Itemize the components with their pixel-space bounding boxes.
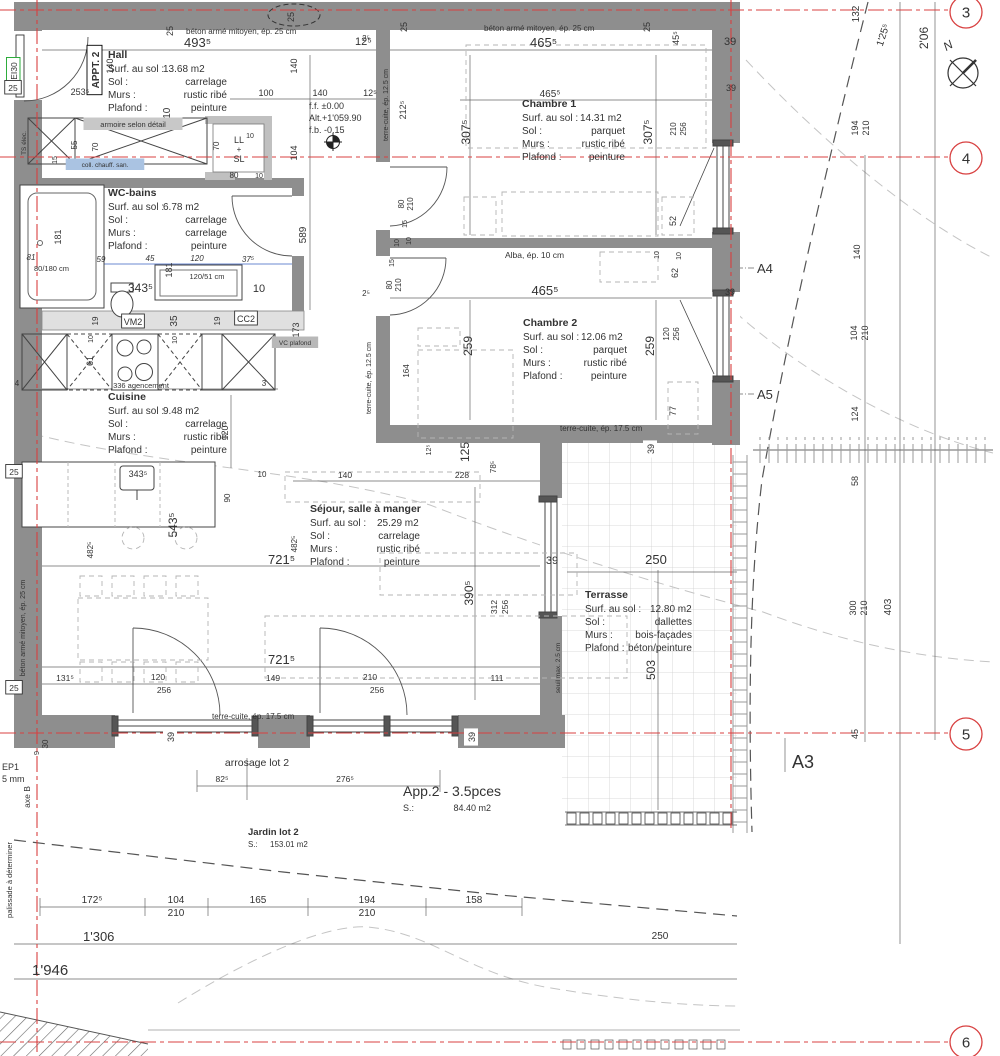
svg-text:250: 250 xyxy=(652,931,669,942)
dim-label: 140 xyxy=(312,88,327,98)
svg-text:Alba, ép. 10 cm: Alba, ép. 10 cm xyxy=(505,250,564,260)
svg-text:EI30: EI30 xyxy=(9,62,19,80)
dim-label: 12⁵ xyxy=(426,445,433,456)
svg-text:256: 256 xyxy=(679,122,688,136)
svg-text:39: 39 xyxy=(546,555,558,567)
svg-text:82⁵: 82⁵ xyxy=(216,774,229,784)
svg-text:212⁵: 212⁵ xyxy=(398,100,408,119)
fence-hatch xyxy=(733,437,993,833)
svg-text:Terrasse: Terrasse xyxy=(585,589,628,601)
dim-label: LL xyxy=(234,135,244,145)
dresser-chambre2 xyxy=(600,252,658,282)
dim-label: 10 xyxy=(654,251,661,259)
svg-text:2'06: 2'06 xyxy=(917,27,931,50)
svg-text:59: 59 xyxy=(97,255,106,264)
dim-label: 589 xyxy=(298,226,309,243)
dim-label: 228 xyxy=(455,470,469,480)
dim-label: 84.40 m2 xyxy=(453,803,491,813)
svg-text:10: 10 xyxy=(406,237,413,245)
svg-text:80: 80 xyxy=(397,199,406,208)
dim-label: 307⁵ xyxy=(459,119,473,144)
floor-plan-drawing: 2525béton armé mitoyen, ép. 25 cm493⁵12⁵… xyxy=(0,0,1000,1056)
svg-text:256: 256 xyxy=(672,327,681,341)
svg-text:terre-cuite, ép. 12.5 cm: terre-cuite, ép. 12.5 cm xyxy=(366,342,373,414)
svg-text:Plafond :: Plafond : xyxy=(108,445,147,456)
dim-label: 30 xyxy=(41,739,50,748)
svg-text:App.2 - 3.5pces: App.2 - 3.5pces xyxy=(403,783,501,799)
svg-text:parquet: parquet xyxy=(593,345,627,356)
svg-text:15: 15 xyxy=(52,156,59,164)
svg-text:543⁵: 543⁵ xyxy=(166,512,180,537)
dim-label: 149 xyxy=(266,673,280,683)
svg-text:39: 39 xyxy=(467,732,477,742)
svg-text:45: 45 xyxy=(146,254,155,263)
dim-label: + xyxy=(237,145,242,154)
bottom-hatch xyxy=(0,1012,740,1056)
level-alt: Alt.+1'059.90 xyxy=(309,113,362,123)
svg-text:39: 39 xyxy=(166,732,176,742)
svg-text:13.68 m2: 13.68 m2 xyxy=(163,64,205,75)
svg-text:2⁵: 2⁵ xyxy=(362,289,370,298)
svg-text:19: 19 xyxy=(213,316,222,325)
svg-text:253⁵: 253⁵ xyxy=(71,87,90,97)
dim-label: 104 xyxy=(849,325,859,340)
svg-text:55: 55 xyxy=(70,140,79,149)
chambre1-door xyxy=(390,167,447,226)
dim-label: S.: xyxy=(248,840,258,849)
svg-text:259: 259 xyxy=(461,336,475,356)
dim-label: 70 xyxy=(212,141,221,150)
grid-bubble-3: 3 xyxy=(950,0,982,28)
dim-label: 165 xyxy=(250,895,267,906)
svg-text:343⁵: 343⁵ xyxy=(129,469,148,479)
dim-label: 10 xyxy=(255,173,263,180)
dim-label: 58 xyxy=(850,476,860,486)
dim-label: 256 xyxy=(370,685,384,695)
svg-text:12⁵: 12⁵ xyxy=(426,445,433,456)
room-label-cuisine: CuisineSurf. au sol :9.48 m2Sol :carrela… xyxy=(108,391,227,456)
dim-label: 25 xyxy=(6,681,23,695)
svg-text:25: 25 xyxy=(8,83,18,93)
svg-text:Surf. au sol :: Surf. au sol : xyxy=(108,202,164,213)
dim-label: VC plafond xyxy=(272,337,318,349)
bed-chambre1 xyxy=(502,192,658,236)
svg-text:140: 140 xyxy=(312,88,327,98)
svg-text:APPT. 2: APPT. 2 xyxy=(91,51,102,88)
svg-text:LL: LL xyxy=(234,135,244,145)
dim-label: 336 agencement xyxy=(113,381,170,390)
dim-label: 45⁵ xyxy=(671,31,681,45)
dim-label: 307⁵ xyxy=(641,119,655,144)
dim-label: 90 xyxy=(223,493,232,502)
svg-text:SL: SL xyxy=(233,154,244,164)
dim-label: 181 xyxy=(164,262,174,277)
svg-text:210: 210 xyxy=(394,278,403,292)
dim-label: 120 xyxy=(151,672,165,682)
svg-text:131⁵: 131⁵ xyxy=(56,673,74,683)
svg-text:peinture: peinture xyxy=(591,371,628,382)
dim-label: 15 xyxy=(52,156,59,164)
dim-label: 25 xyxy=(6,465,23,479)
section-marker-a3: A3 xyxy=(792,752,814,772)
dim-label: terre-cuite, ép. 17.5 cm xyxy=(560,424,643,433)
svg-text:6.78 m2: 6.78 m2 xyxy=(163,202,200,213)
svg-text:25: 25 xyxy=(9,683,19,693)
svg-text:307⁵: 307⁵ xyxy=(459,119,473,144)
dim-label: 61 xyxy=(85,356,95,366)
svg-text:10: 10 xyxy=(258,470,267,479)
dim-label: 131⁵ xyxy=(56,673,74,683)
dim-label: 210 xyxy=(861,120,871,135)
svg-text:Murs :: Murs : xyxy=(585,630,613,641)
svg-text:Surf. au sol :: Surf. au sol : xyxy=(108,406,164,417)
svg-text:Murs :: Murs : xyxy=(522,139,550,150)
dim-label: 210 xyxy=(859,600,869,615)
svg-text:5 mm: 5 mm xyxy=(2,774,25,784)
svg-text:210: 210 xyxy=(861,120,871,135)
svg-text:181: 181 xyxy=(164,262,174,277)
dim-label: 276⁵ xyxy=(336,774,354,784)
dim-label: armoire selon détail xyxy=(84,118,183,131)
dim-label: 80 xyxy=(397,199,406,208)
svg-text:78⁵: 78⁵ xyxy=(489,461,498,473)
svg-text:256: 256 xyxy=(500,600,510,614)
svg-text:10: 10 xyxy=(88,335,95,343)
svg-text:61: 61 xyxy=(85,356,95,366)
svg-text:165: 165 xyxy=(250,895,267,906)
svg-text:210: 210 xyxy=(168,908,185,919)
dim-label: 256 xyxy=(500,600,510,614)
dim-label: 39 xyxy=(163,728,177,745)
svg-text:312: 312 xyxy=(489,600,499,614)
svg-text:A5: A5 xyxy=(757,387,773,402)
svg-text:62: 62 xyxy=(670,268,680,278)
dim-label: 2⁵ xyxy=(362,34,370,43)
svg-text:seuil max. 2.5 cm: seuil max. 2.5 cm xyxy=(555,643,562,694)
svg-text:1'25⁵: 1'25⁵ xyxy=(875,23,892,48)
svg-text:149: 149 xyxy=(266,673,280,683)
svg-text:45⁵: 45⁵ xyxy=(671,31,681,45)
dim-label: 124 xyxy=(850,406,860,421)
chair xyxy=(144,576,166,596)
room-label-chambre2: Chambre 2Surf. au sol :12.06 m2Sol :parq… xyxy=(523,317,627,382)
svg-text:45: 45 xyxy=(850,729,860,739)
dim-label: 343⁵ xyxy=(128,281,153,295)
grid-bubbles-layer: 3456 xyxy=(950,0,982,1056)
nightstand xyxy=(464,197,496,235)
svg-text:12⁵: 12⁵ xyxy=(363,88,377,98)
svg-text:503: 503 xyxy=(644,660,658,680)
bathtub xyxy=(20,185,104,308)
bed-chambre2 xyxy=(418,350,513,438)
svg-text:589: 589 xyxy=(298,226,309,243)
dim-label: terre-cuite, ép. 17.5 cm xyxy=(212,712,295,721)
dim-label: 403 xyxy=(883,598,894,615)
svg-text:3: 3 xyxy=(962,5,970,22)
property-boundary xyxy=(14,840,737,916)
dim-label: 194 xyxy=(850,120,860,135)
dim-label: 173 xyxy=(291,322,301,337)
svg-text:9: 9 xyxy=(32,751,41,755)
svg-text:peinture: peinture xyxy=(191,103,228,114)
level-marker-icon xyxy=(324,133,342,151)
dim-label: 39 xyxy=(546,555,558,567)
dim-label: 120 xyxy=(190,254,204,263)
svg-text:482⁵: 482⁵ xyxy=(290,536,299,553)
svg-text:194: 194 xyxy=(850,120,860,135)
dim-label: 81 xyxy=(27,253,36,262)
svg-text:4: 4 xyxy=(15,379,20,388)
svg-text:12.06 m2: 12.06 m2 xyxy=(581,332,623,343)
svg-text:19: 19 xyxy=(91,316,100,325)
svg-text:90: 90 xyxy=(223,493,232,502)
dim-label: 52 xyxy=(668,216,678,226)
svg-text:120: 120 xyxy=(151,672,165,682)
dim-label: 194 xyxy=(359,895,376,906)
dim-label: 140 xyxy=(852,244,862,259)
svg-text:terre-cuite, ép. 12.5 cm: terre-cuite, ép. 12.5 cm xyxy=(383,69,390,141)
svg-text:15: 15 xyxy=(389,259,396,267)
svg-text:140: 140 xyxy=(338,470,352,480)
dim-label: 35 xyxy=(169,315,180,327)
level-ff: f.f. ±0.00 xyxy=(309,101,344,111)
dim-label: VM2 xyxy=(122,314,145,328)
dim-label: seuil max. 2.5 cm xyxy=(555,643,562,694)
svg-text:Cuisine: Cuisine xyxy=(108,391,146,403)
dim-label: 19 xyxy=(213,316,222,325)
dim-label: 259 xyxy=(643,336,657,356)
chair xyxy=(112,576,134,596)
dim-label: 39 xyxy=(726,83,736,93)
dim-label: 12⁵ xyxy=(363,88,377,98)
svg-text:181: 181 xyxy=(53,229,63,244)
dim-label: 1'25⁵ xyxy=(875,23,892,48)
svg-text:bois-façades: bois-façades xyxy=(635,630,692,641)
svg-text:S.:: S.: xyxy=(248,840,258,849)
svg-text:9.48 m2: 9.48 m2 xyxy=(163,406,200,417)
svg-text:210: 210 xyxy=(406,197,415,211)
svg-text:259: 259 xyxy=(643,336,657,356)
svg-text:210: 210 xyxy=(859,600,869,615)
svg-text:peinture: peinture xyxy=(191,241,228,252)
sejour-door-1 xyxy=(133,628,220,715)
svg-text:100: 100 xyxy=(258,88,273,98)
dim-label: TS élec. xyxy=(21,131,28,155)
dim-label: 312 xyxy=(489,600,499,614)
svg-text:terre-cuite, ép. 17.5 cm: terre-cuite, ép. 17.5 cm xyxy=(212,712,295,721)
svg-text:343⁵: 343⁵ xyxy=(128,281,153,295)
svg-text:carrelage: carrelage xyxy=(185,228,227,239)
dim-label: 256 xyxy=(672,327,681,341)
svg-text:125: 125 xyxy=(458,442,472,462)
svg-text:14.31 m2: 14.31 m2 xyxy=(580,113,622,124)
dim-label: terre-cuite, ép. 12.5 cm xyxy=(366,342,373,414)
svg-text:Sol :: Sol : xyxy=(108,419,128,430)
dim-label: 39 xyxy=(643,440,657,457)
dim-label: 100 xyxy=(258,88,273,98)
dim-label: 158 xyxy=(466,895,483,906)
dim-label: 45 xyxy=(850,729,860,739)
apartment-area-label: App.2 - 3.5pces xyxy=(403,783,501,799)
dim-label: 120 xyxy=(662,327,671,341)
svg-text:120: 120 xyxy=(190,254,204,263)
dim-label: 210 xyxy=(359,908,376,919)
svg-text:721⁵: 721⁵ xyxy=(268,552,295,567)
svg-text:Plafond :: Plafond : xyxy=(108,241,147,252)
dim-label: 721⁵ xyxy=(268,552,295,567)
svg-text:120: 120 xyxy=(662,327,671,341)
dim-label: palissade à déterminer xyxy=(5,842,14,918)
svg-text:336 agencement: 336 agencement xyxy=(113,381,170,390)
svg-text:Jardin lot 2: Jardin lot 2 xyxy=(248,827,299,838)
svg-text:carrelage: carrelage xyxy=(185,419,227,430)
room-label-sejour: Séjour, salle à mangerSurf. au sol :25.2… xyxy=(310,503,421,568)
svg-text:VC plafond: VC plafond xyxy=(279,340,312,347)
dim-label: CC2 xyxy=(235,311,258,325)
dim-label: 2⁵ xyxy=(362,289,370,298)
svg-text:10: 10 xyxy=(676,252,683,260)
svg-text:Sol :: Sol : xyxy=(108,77,128,88)
svg-text:coll. chauff. san.: coll. chauff. san. xyxy=(82,162,129,169)
dim-label: 82⁵ xyxy=(216,774,229,784)
dim-label: 62 xyxy=(670,268,680,278)
dim-label: 10 xyxy=(253,283,265,295)
svg-text:104: 104 xyxy=(289,145,299,160)
room-label-wc-bains: WC-bainsSurf. au sol :6.78 m2Sol :carrel… xyxy=(108,187,227,252)
svg-text:Chambre 2: Chambre 2 xyxy=(523,317,577,329)
dim-label: 543⁵ xyxy=(166,512,180,537)
svg-text:124: 124 xyxy=(850,406,860,421)
chair xyxy=(176,576,198,596)
svg-text:164: 164 xyxy=(402,364,411,378)
dim-label: 25 xyxy=(399,22,409,32)
svg-text:béton/peinture: béton/peinture xyxy=(628,643,692,654)
svg-text:Plafond :: Plafond : xyxy=(585,643,624,654)
svg-text:256: 256 xyxy=(157,685,171,695)
svg-text:307⁵: 307⁵ xyxy=(641,119,655,144)
chair xyxy=(176,662,198,682)
dim-label: 210 xyxy=(669,122,678,136)
svg-text:10: 10 xyxy=(394,239,401,247)
svg-text:172⁵: 172⁵ xyxy=(82,895,103,906)
north-label: N xyxy=(941,37,956,54)
svg-text:rustic ribé: rustic ribé xyxy=(582,139,626,150)
dim-label: 212⁵ xyxy=(398,100,408,119)
dim-label: 210 xyxy=(394,278,403,292)
dim-label: SL xyxy=(233,154,244,164)
floor-plan-page: 2525béton armé mitoyen, ép. 25 cm493⁵12⁵… xyxy=(0,0,1000,1056)
dim-label: 10 xyxy=(88,335,95,343)
svg-text:81: 81 xyxy=(27,253,36,262)
dim-label: 104 xyxy=(289,145,299,160)
svg-text:Plafond :: Plafond : xyxy=(108,103,147,114)
svg-text:390⁵: 390⁵ xyxy=(462,580,476,605)
dim-label: 4 xyxy=(15,379,20,388)
dim-label: 59 xyxy=(97,255,106,264)
svg-text:80/180 cm: 80/180 cm xyxy=(34,264,69,273)
svg-text:158: 158 xyxy=(466,895,483,906)
dim-label: 210 xyxy=(168,908,185,919)
svg-text:palissade à déterminer: palissade à déterminer xyxy=(5,842,14,918)
svg-text:25: 25 xyxy=(642,22,652,32)
svg-text:58: 58 xyxy=(850,476,860,486)
dim-label: 250 xyxy=(645,552,667,567)
svg-text:S.:: S.: xyxy=(403,803,414,813)
svg-text:Plafond :: Plafond : xyxy=(310,557,349,568)
svg-text:25.29 m2: 25.29 m2 xyxy=(377,518,419,529)
dim-label: 5 mm xyxy=(2,774,25,784)
svg-text:80: 80 xyxy=(230,171,239,180)
room-label-chambre1: Chambre 1Surf. au sol :14.31 m2Sol :parq… xyxy=(522,98,625,163)
svg-text:CC2: CC2 xyxy=(237,314,255,324)
dim-label: 250 xyxy=(652,931,669,942)
dim-label: béton armé mitoyen, ép. 25 cm xyxy=(484,24,595,33)
dim-label: 15 xyxy=(389,259,396,267)
svg-text:A3: A3 xyxy=(792,752,814,772)
kitchen-island xyxy=(22,462,215,527)
dim-label: 210 xyxy=(363,672,377,682)
compass-icon xyxy=(948,58,978,88)
svg-text:N: N xyxy=(941,37,956,54)
dim-label: 721⁵ xyxy=(268,652,295,667)
dim-label: 3 xyxy=(262,379,267,388)
dim-label: 465⁵ xyxy=(530,35,557,50)
dim-label: 80 xyxy=(230,171,239,180)
dim-label: 253⁵ xyxy=(71,87,90,97)
svg-text:Surf. au sol :: Surf. au sol : xyxy=(108,64,164,75)
svg-text:104: 104 xyxy=(168,895,185,906)
svg-text:peinture: peinture xyxy=(191,445,228,456)
svg-text:25: 25 xyxy=(399,22,409,32)
svg-text:10: 10 xyxy=(172,336,179,344)
svg-text:béton armé mitoyen, ép. 25 cm: béton armé mitoyen, ép. 25 cm xyxy=(484,24,595,33)
svg-text:terre-cuite, ép. 17.5 cm: terre-cuite, ép. 17.5 cm xyxy=(560,424,643,433)
dim-label: S.: xyxy=(403,803,414,813)
svg-text:A4: A4 xyxy=(757,261,773,276)
dim-label: 25 xyxy=(286,12,296,22)
dim-label: 19 xyxy=(91,316,100,325)
dim-label: 10 xyxy=(394,239,401,247)
svg-text:210: 210 xyxy=(359,908,376,919)
svg-text:Sol :: Sol : xyxy=(523,345,543,356)
svg-text:Surf. au sol :: Surf. au sol : xyxy=(523,332,579,343)
svg-text:10: 10 xyxy=(255,173,263,180)
window-sejour-south-2 xyxy=(307,715,458,748)
dim-label: 465⁵ xyxy=(531,283,558,298)
dim-label: 256 xyxy=(157,685,171,695)
svg-text:+: + xyxy=(237,145,242,154)
svg-text:rustic ribé: rustic ribé xyxy=(184,432,228,443)
svg-text:VM2: VM2 xyxy=(124,317,143,327)
svg-text:482⁵: 482⁵ xyxy=(86,542,95,559)
svg-text:721⁵: 721⁵ xyxy=(268,652,295,667)
svg-text:210: 210 xyxy=(669,122,678,136)
dim-label: 55 xyxy=(70,140,79,149)
dim-label: 10 xyxy=(172,336,179,344)
dim-label: 482⁵ xyxy=(290,536,299,553)
svg-text:10: 10 xyxy=(253,283,265,295)
ep1-label: EP1 xyxy=(2,762,19,772)
svg-text:Murs :: Murs : xyxy=(108,90,136,101)
svg-text:peinture: peinture xyxy=(589,152,626,163)
dim-label: 25 xyxy=(165,26,175,36)
svg-text:39: 39 xyxy=(646,444,656,454)
svg-text:Plafond :: Plafond : xyxy=(523,371,562,382)
dim-label: 390⁵ xyxy=(462,580,476,605)
svg-text:465⁵: 465⁵ xyxy=(531,283,558,298)
svg-text:rustic ribé: rustic ribé xyxy=(584,358,628,369)
dim-label: 482⁵ xyxy=(86,542,95,559)
